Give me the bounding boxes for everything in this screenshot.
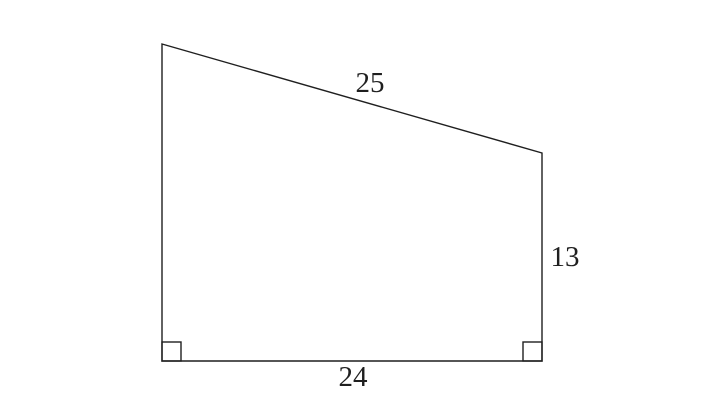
right-angle-marker-bottom-right xyxy=(523,342,542,361)
quadrilateral-outline xyxy=(162,44,542,361)
side-label-slant: 25 xyxy=(356,67,385,99)
right-angle-marker-bottom-left xyxy=(162,342,181,361)
trapezoid-svg: 25 13 24 xyxy=(0,0,724,407)
side-label-right: 13 xyxy=(551,241,580,273)
side-label-bottom: 24 xyxy=(339,361,369,393)
geometry-figure: 25 13 24 xyxy=(0,0,724,407)
